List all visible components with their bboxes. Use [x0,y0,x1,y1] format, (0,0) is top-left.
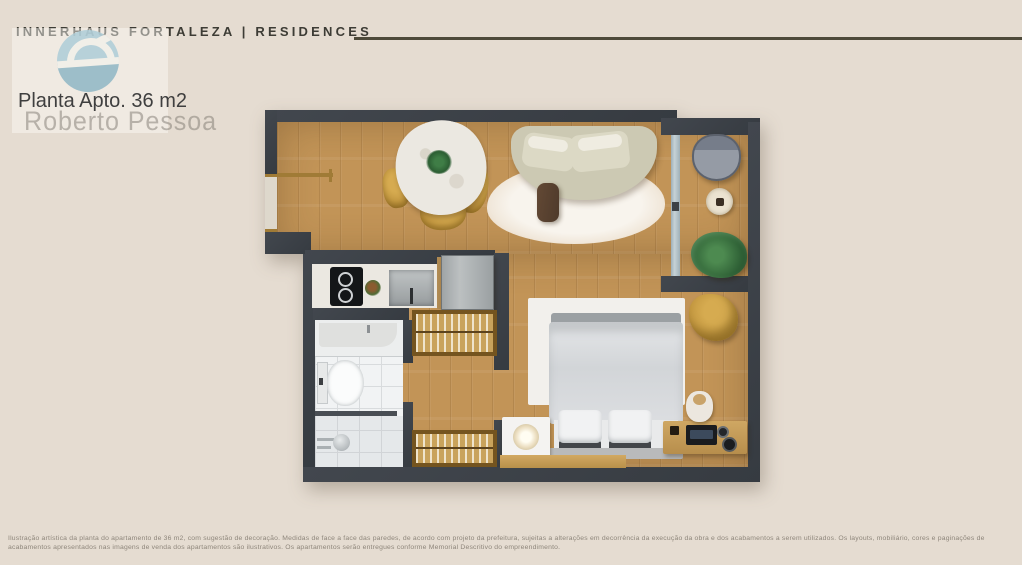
toilet-bowl [327,360,364,406]
tv-device [686,425,717,445]
bathroom-faucet [367,325,370,333]
counter-decor-plant [365,280,381,296]
pillow [558,410,602,443]
glass-door-handle [672,202,679,211]
jar-lamp-lid [693,394,706,405]
burner-icon [338,288,353,303]
pillow [608,410,652,443]
toilet-flush-button [319,378,323,385]
entry-door-threshold [265,174,277,232]
entry-door-leaf [277,173,333,177]
clothes-rack-bottom [412,430,497,467]
floor-plan [265,110,760,482]
sink-basin [319,323,397,347]
jar-lamp [686,391,713,422]
table-center-plant [426,150,452,174]
page: INNERHAUS FORTALEZA | RESIDENCES Planta … [0,0,1022,565]
burner-icon [338,272,353,287]
refrigerator [441,255,494,310]
legal-disclaimer: Ilustração artística da planta do aparta… [8,535,1014,553]
wall-balcony-bottom [661,276,748,292]
shower-arm [317,438,334,441]
kitchen-faucet [410,288,413,304]
bench-strip [500,455,626,468]
wall-top [265,110,677,122]
side-table-center [716,198,724,206]
wall-right [748,122,760,482]
balcony-side-table [706,188,733,215]
console-small-box [670,426,679,435]
wall-bathroom-top [313,308,409,320]
balcony-plant [691,232,747,278]
shower-valve [317,446,331,449]
watermark-name: Roberto Pessoa [24,106,217,137]
bathroom-sink-counter [315,320,403,357]
tv-screen [690,430,713,439]
wall-left-upper [265,110,277,174]
kitchen-sink [389,270,434,306]
clothes-rack-top [412,310,497,356]
wall-top-balcony [661,118,760,135]
bed-duvet [549,322,683,424]
header-rule [354,37,1022,40]
cooktop [330,267,363,306]
nightstand-lamp [513,424,539,450]
shower-floor-tint [315,416,403,467]
console-knob [722,437,737,452]
watermark-logo-icon [57,30,119,92]
coffee-table [537,183,559,222]
balcony-chair [692,134,741,181]
entry-door-handle [329,169,332,182]
nightstand [502,417,550,457]
shower-head [333,434,350,451]
wall-bottom [303,467,760,482]
